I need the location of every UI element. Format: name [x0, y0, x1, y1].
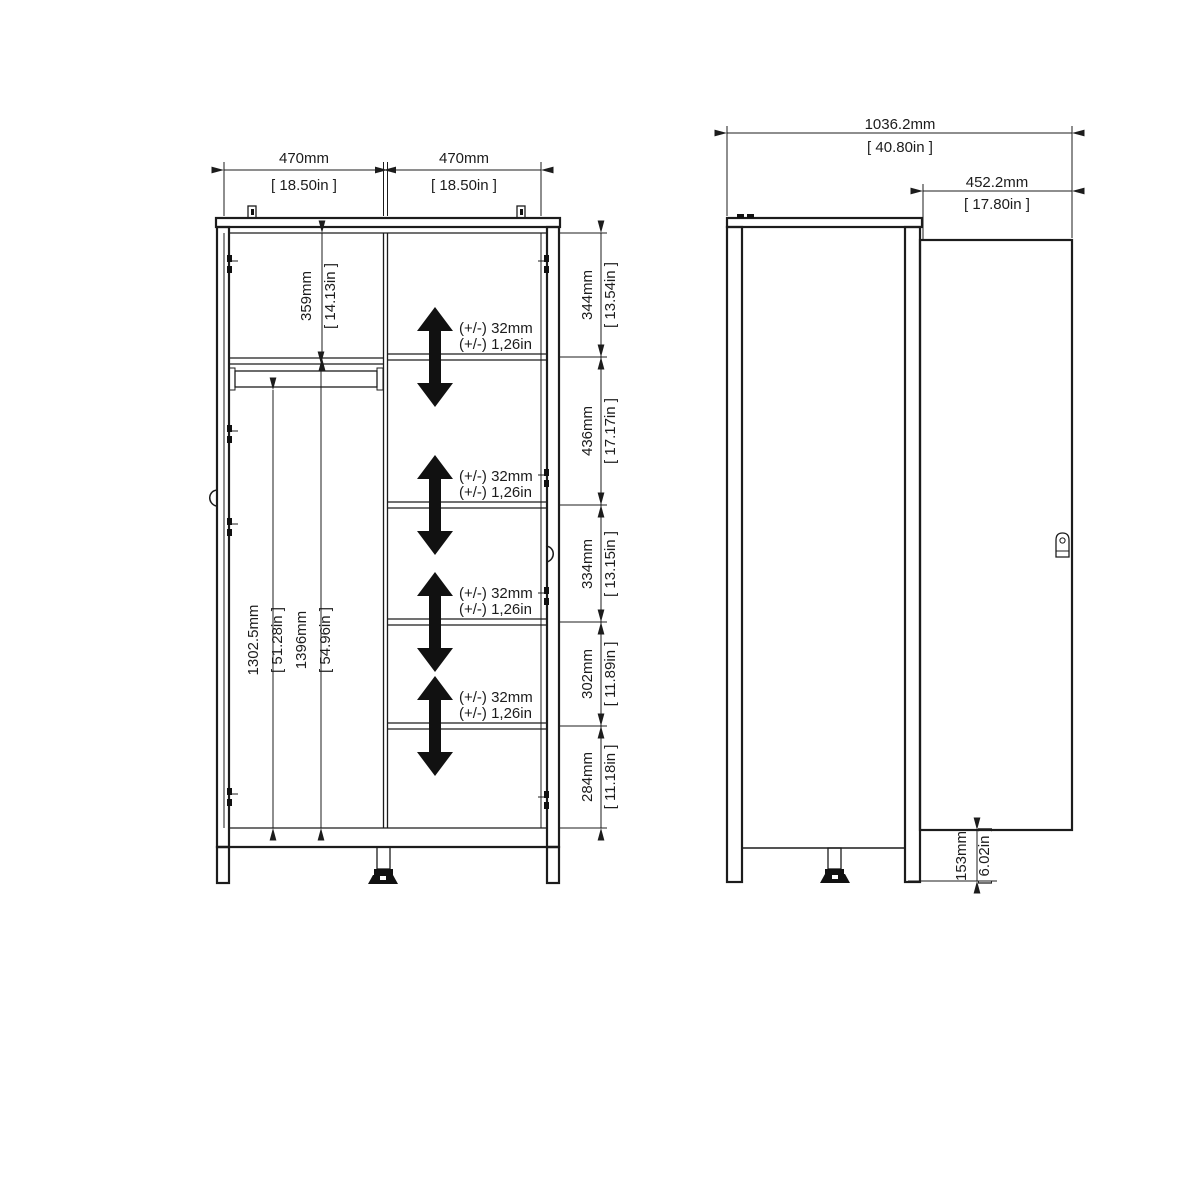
wardrobe-dimension-drawing: 470mm [ 18.50in ] 470mm [ 18.50in ] 359m… [0, 0, 1200, 1200]
dim-leg-mm: 153mm [953, 831, 970, 881]
dim-top-shelf-in: [ 14.13in ] [322, 263, 339, 329]
adjust2-in: (+/-) 1,26in [459, 484, 532, 501]
dim-gap5-in: [ 11.18in ] [602, 745, 619, 810]
dim-leg-in: [ 6.02in ] [976, 827, 993, 885]
dim-gap3-mm: 334mm [579, 539, 596, 589]
adjust-arrow-icon [417, 307, 453, 407]
dim-door-widths: 470mm [ 18.50in ] 470mm [ 18.50in ] [224, 150, 541, 216]
dim-depth-mm: 452.2mm [966, 174, 1029, 191]
dim-rail-clearance-in: [ 51.28in ] [269, 607, 286, 673]
dim-top-shelf-mm: 359mm [298, 271, 315, 321]
dim-gap2-in: [ 17.17in ] [602, 398, 619, 464]
side-anchor-mark-b [747, 214, 754, 218]
dim-overall-mm: 1036.2mm [865, 116, 936, 133]
adjust1-in: (+/-) 1,26in [459, 336, 532, 353]
adjust2-mm: (+/-) 32mm [459, 468, 533, 485]
front-left-wall [217, 227, 229, 847]
adjust-arrow-icon [417, 676, 453, 776]
dim-rail-clearance-mm: 1302.5mm [245, 605, 262, 676]
hanging-rail [235, 371, 377, 387]
dim-gap2-mm: 436mm [579, 406, 596, 456]
side-front-wall [727, 227, 742, 882]
side-anchor-mark-a [737, 214, 744, 218]
dim-leg-height: 153mm [ 6.02in ] [908, 827, 997, 885]
dim-gap4-in: [ 11.89in ] [602, 642, 619, 707]
dim-gap3-in: [ 13.15in ] [602, 531, 619, 597]
adjust1-mm: (+/-) 32mm [459, 320, 533, 337]
dim-gap1-in: [ 13.54in ] [602, 262, 619, 328]
side-door-panel [920, 240, 1072, 830]
adjustable-shelves [388, 354, 546, 729]
rail-mount-right [377, 368, 383, 390]
side-back-wall [905, 227, 920, 882]
adjust-arrow-icon [417, 455, 453, 555]
front-left-leg [217, 847, 229, 883]
dim-left-door-in: [ 18.50in ] [271, 177, 337, 194]
front-adjustable-foot-icon [368, 847, 398, 884]
adjust4-in: (+/-) 1,26in [459, 705, 532, 722]
dim-overall-in: [ 40.80in ] [867, 139, 933, 156]
dim-gap5-mm: 284mm [579, 752, 596, 802]
adjust3-in: (+/-) 1,26in [459, 601, 532, 618]
dim-interior-height-mm: 1396mm [293, 611, 310, 669]
adjust3-mm: (+/-) 32mm [459, 585, 533, 602]
front-right-leg [547, 847, 559, 883]
dim-left-door-mm: 470mm [279, 150, 329, 167]
dim-door-depth: 452.2mm [ 17.80in ] [923, 174, 1072, 240]
side-adjustable-foot-icon [820, 848, 850, 883]
shelf-adjust-arrows: (+/-) 32mm (+/-) 1,26in (+/-) 32mm (+/-)… [417, 307, 533, 776]
side-door-handle-icon [1056, 533, 1069, 557]
dim-shelf-chain: 344mm [ 13.54in ] 436mm [ 17.17in ] 334m… [560, 233, 619, 828]
dim-depth-in: [ 17.80in ] [964, 196, 1030, 213]
dim-top-shelf: 359mm [ 14.13in ] [298, 233, 339, 358]
front-right-wall [547, 227, 559, 847]
wall-anchor-left-icon [248, 206, 256, 218]
dim-gap4-mm: 302mm [579, 649, 596, 699]
dim-gap1-mm: 344mm [579, 270, 596, 320]
dim-interior-height: 1396mm [ 54.96in ] [293, 364, 334, 828]
front-view: 470mm [ 18.50in ] 470mm [ 18.50in ] 359m… [210, 150, 619, 884]
dim-interior-height-in: [ 54.96in ] [317, 607, 334, 673]
dim-rail-clearance: 1302.5mm [ 51.28in ] [245, 390, 286, 828]
technical-drawing-page: 470mm [ 18.50in ] 470mm [ 18.50in ] 359m… [0, 0, 1200, 1200]
side-top-panel [727, 218, 922, 227]
adjust4-mm: (+/-) 32mm [459, 689, 533, 706]
dim-right-door-in: [ 18.50in ] [431, 177, 497, 194]
side-view: 1036.2mm [ 40.80in ] 452.2mm [ 17.80in ]… [727, 116, 1072, 885]
dim-right-door-mm: 470mm [439, 150, 489, 167]
front-top-panel [216, 218, 560, 227]
wall-anchor-right-icon [517, 206, 525, 218]
adjust-arrow-icon [417, 572, 453, 672]
